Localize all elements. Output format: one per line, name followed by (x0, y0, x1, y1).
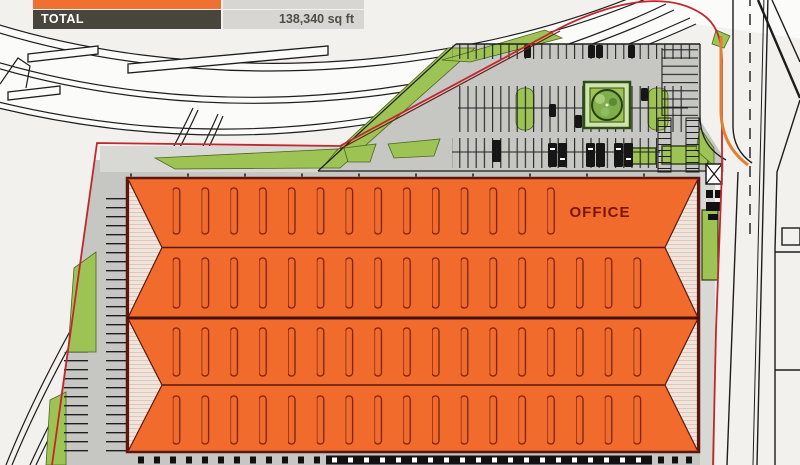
total-row: TOTAL 138,340 sq ft (33, 10, 364, 29)
tree-symbol (584, 82, 630, 128)
total-label: TOTAL (33, 10, 221, 29)
summary-table: TOTAL 138,340 sq ft (33, 0, 364, 30)
west-dock-ticks (106, 196, 128, 452)
office-label: OFFICE (548, 204, 652, 221)
total-value: 138,340 sq ft (223, 10, 364, 29)
clipped-row-value-cell (223, 0, 364, 9)
skylights-rows (168, 250, 647, 450)
clipped-row-label-cell (33, 0, 221, 9)
site-plan-drawing (0, 0, 800, 465)
skylights-row1 (168, 180, 558, 240)
site-plan-canvas: TOTAL 138,340 sq ft OFFICE (0, 0, 800, 465)
clipped-row (33, 0, 364, 9)
